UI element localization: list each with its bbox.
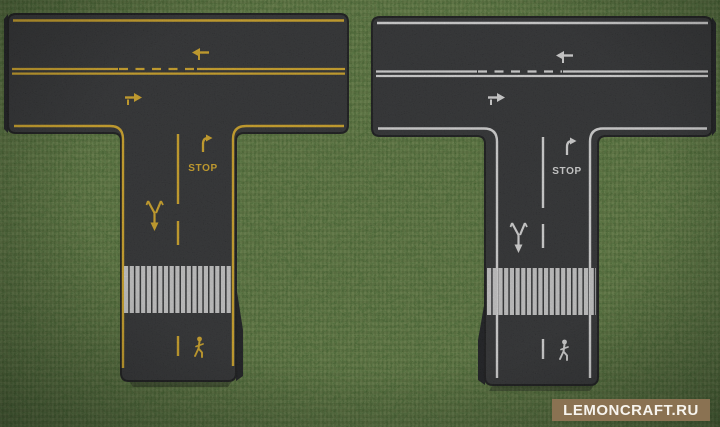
watermark-text: LEMONCRAFT.RU [563, 403, 699, 418]
grain-dark-overlay [0, 0, 720, 427]
watermark-bar: LEMONCRAFT.RU [552, 399, 710, 421]
screenshot-canvas: STOP [0, 0, 720, 427]
scene-graphic: STOP [0, 0, 720, 427]
